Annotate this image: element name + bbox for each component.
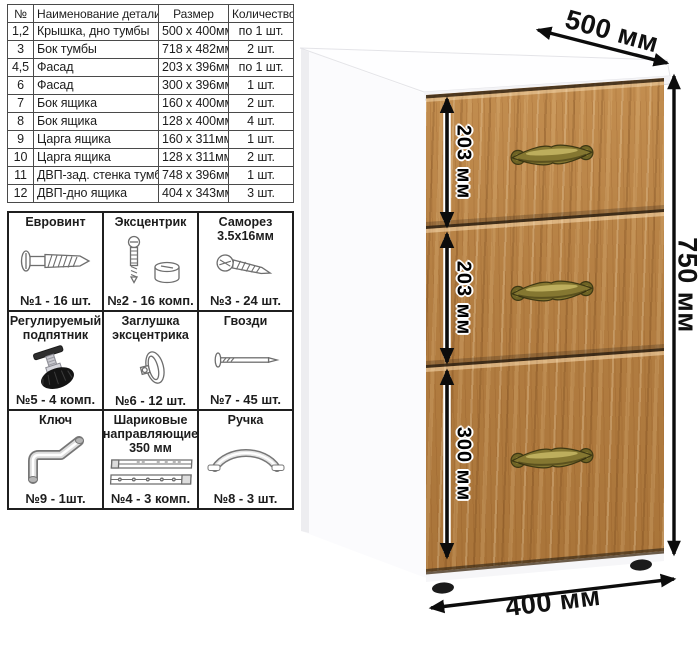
assembly-instruction-sheet: № Наименование детали Размер Количество … (0, 0, 700, 648)
drawer2-height-label: 203 мм (452, 261, 475, 336)
dimension-arrows (0, 0, 700, 648)
drawer1-height-label: 203 мм (452, 125, 475, 200)
drawer3-height-label: 300 мм (452, 427, 475, 502)
dimension-label-height: 750 мм (672, 237, 700, 333)
